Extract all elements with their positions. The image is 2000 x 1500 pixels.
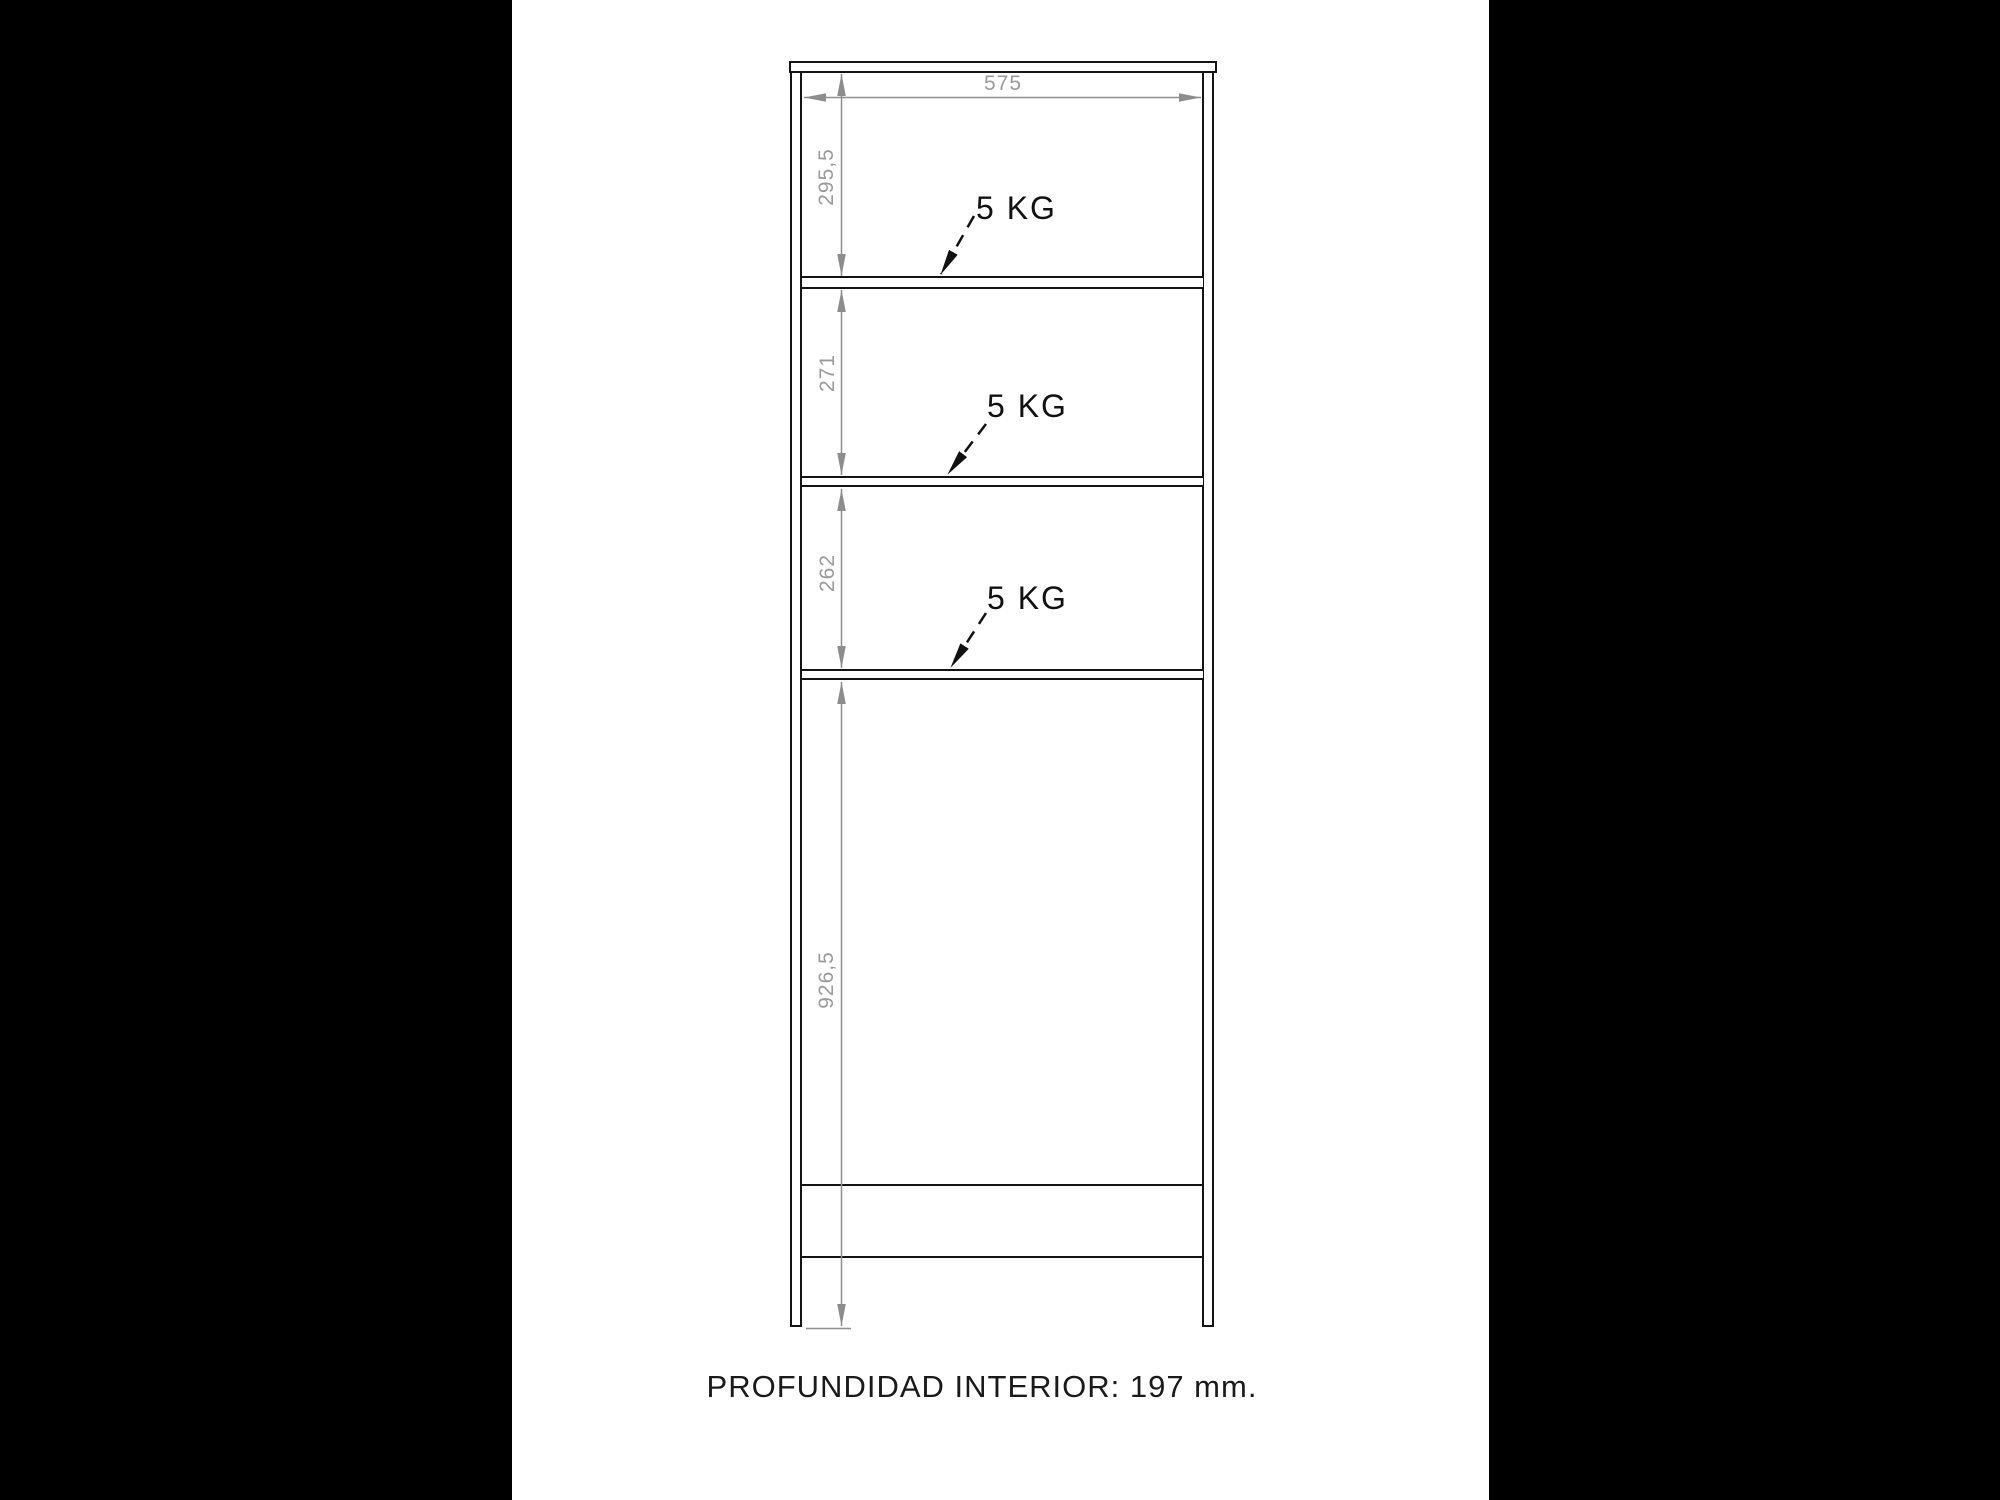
bottom-rail-lower [802, 1256, 1203, 1258]
dim-section2-label: 271 [816, 354, 840, 392]
right-side-panel [1202, 71, 1214, 1327]
dim-section4-label: 926,5 [815, 951, 839, 1009]
dim-section1-label: 295,5 [815, 148, 839, 206]
left-side-panel [790, 71, 802, 1327]
shelf-2 [802, 476, 1203, 487]
load-label-2: 5 KG [987, 388, 1068, 425]
footer-note: PROFUNDIDAD INTERIOR: 197 mm. [707, 1369, 1258, 1405]
load-label-3: 5 KG [987, 580, 1068, 617]
page: 575 295,5 271 262 926,5 5 KG 5 KG 5 KG P… [0, 0, 2000, 1500]
shelf-3 [802, 669, 1203, 680]
shelf-1 [802, 276, 1203, 289]
dim-width-label: 575 [984, 72, 1022, 96]
dim-section3-label: 262 [816, 554, 840, 592]
bottom-rail-upper [802, 1184, 1203, 1186]
load-label-1: 5 KG [976, 190, 1057, 227]
